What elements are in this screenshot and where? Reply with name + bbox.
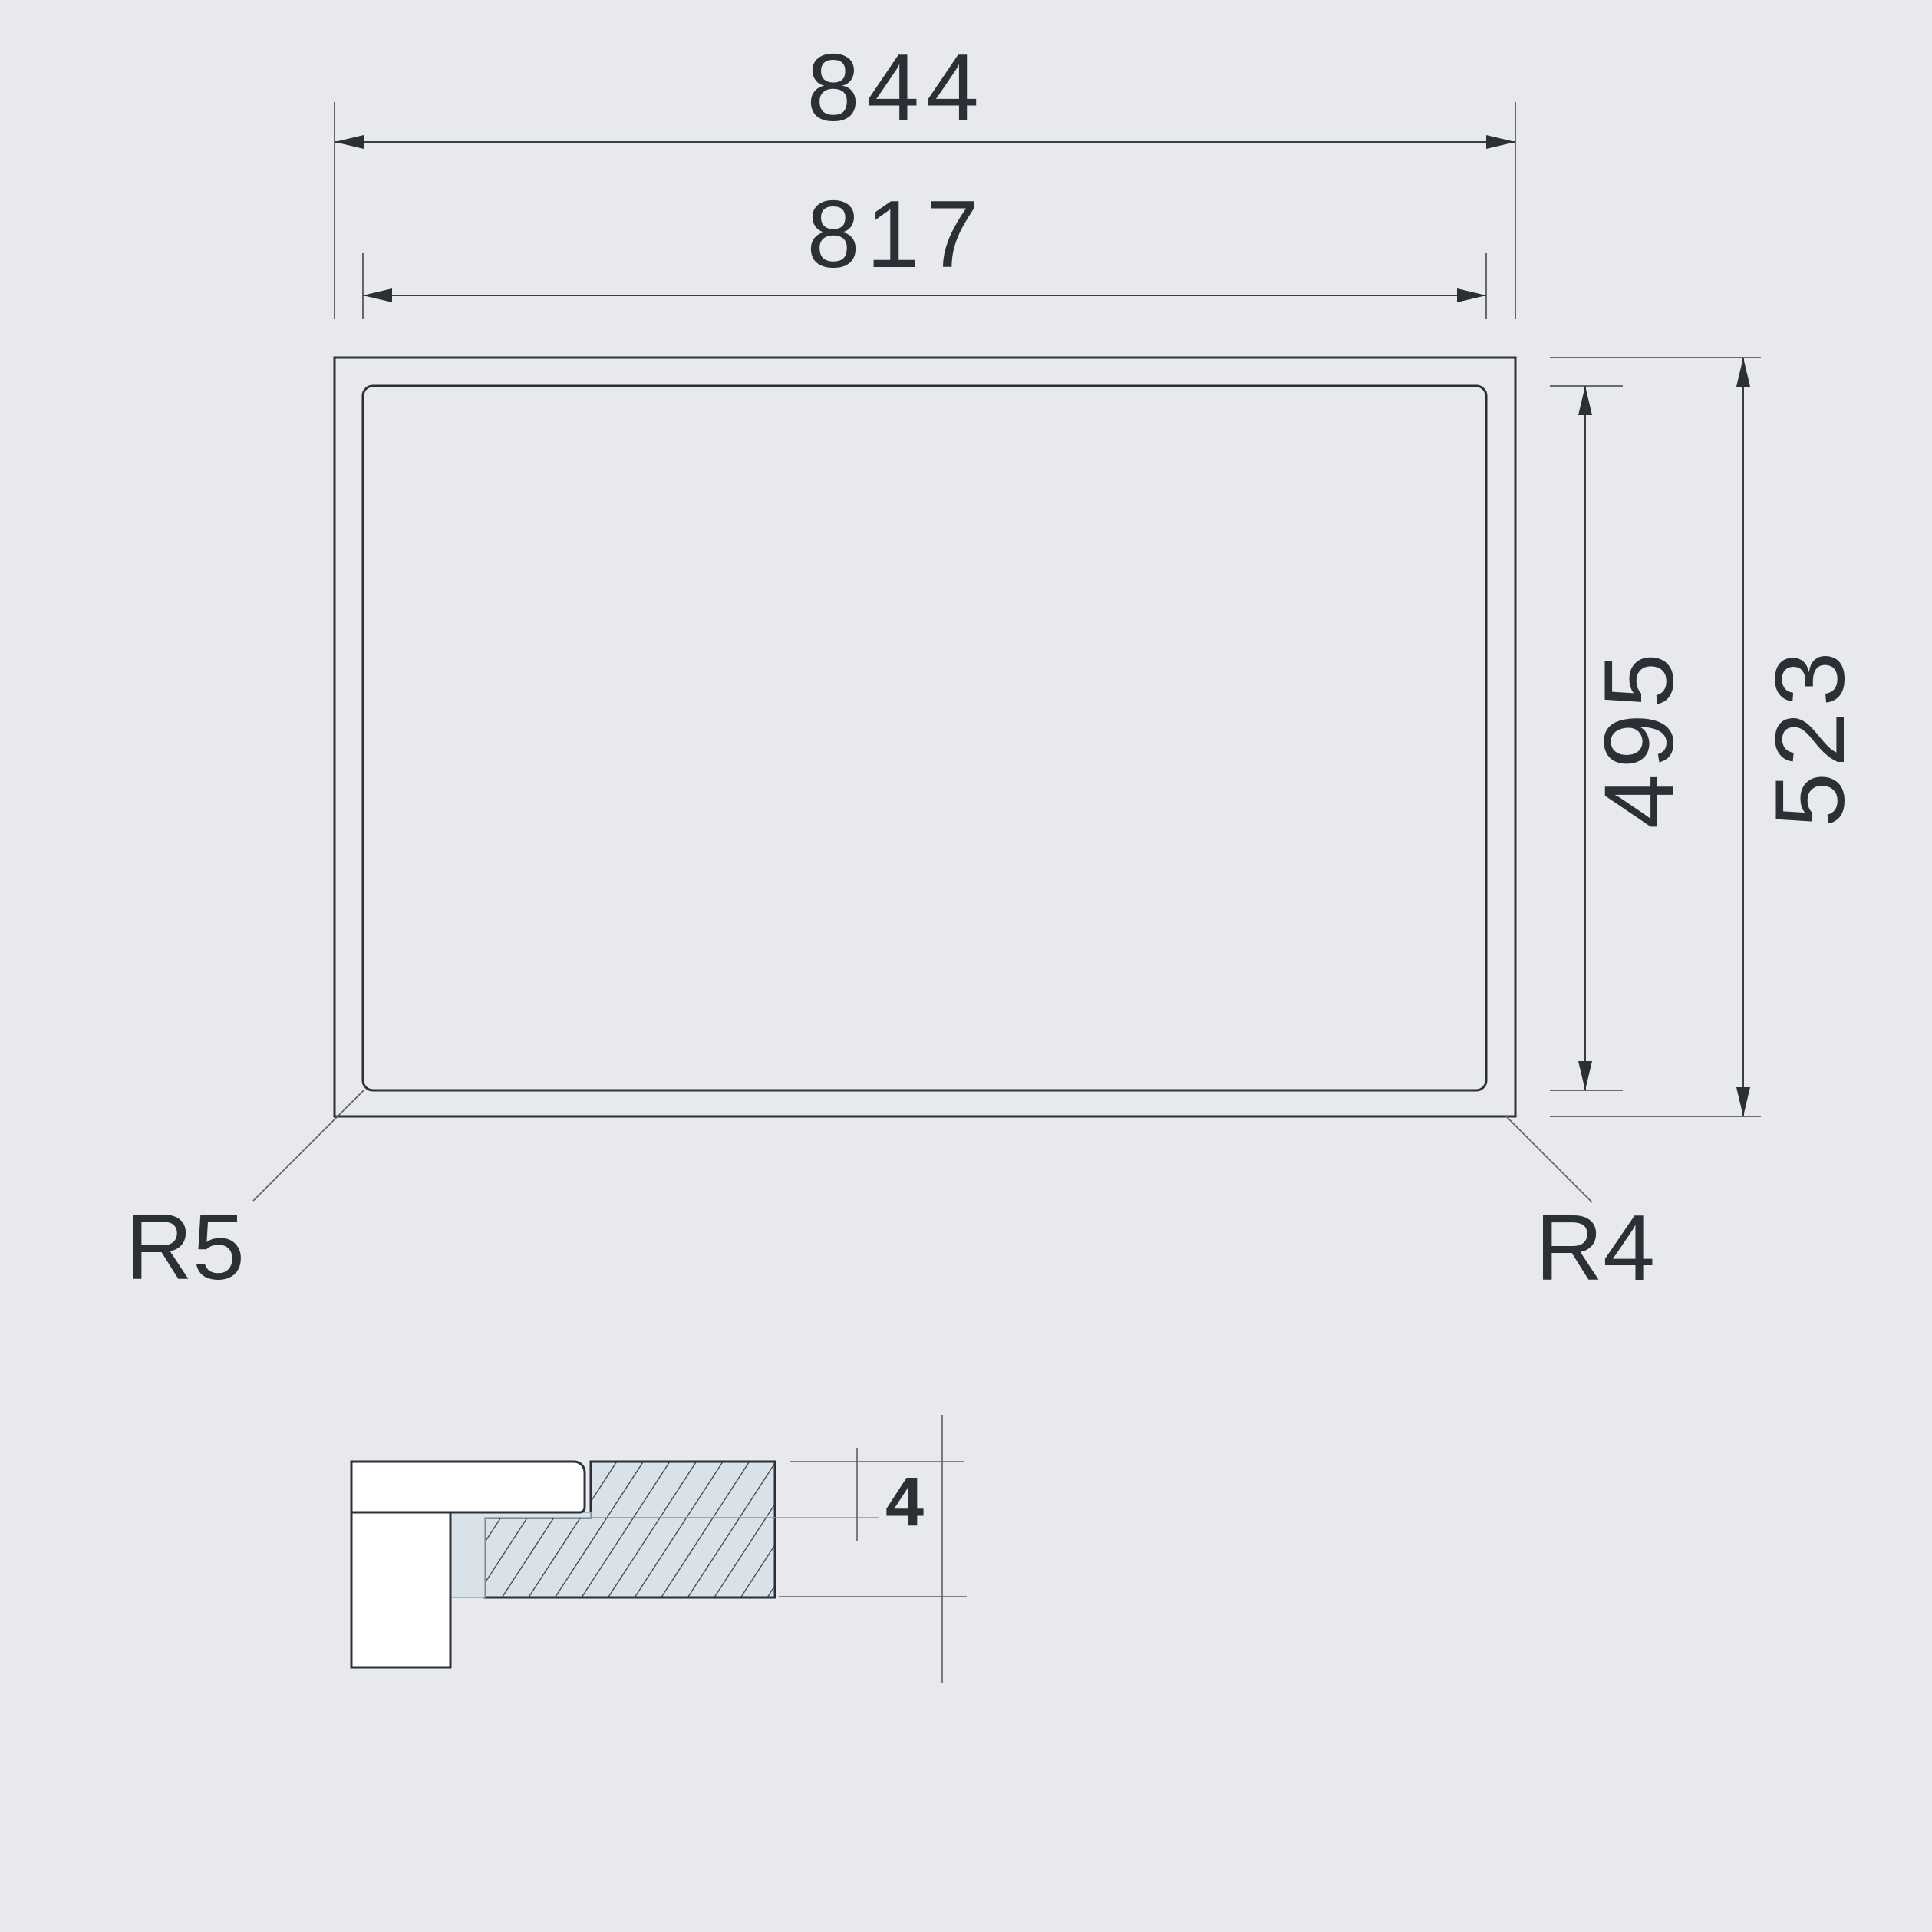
glass-panel-section: [351, 1462, 585, 1512]
drawing-canvas: 844 817 495 523: [0, 0, 1932, 1932]
arrow-up-icon: [1736, 358, 1750, 387]
plan-view: 844 817 495 523: [125, 35, 1865, 1300]
leader-line-r4: [1506, 1116, 1592, 1202]
dimension-inner-height: 495: [1550, 386, 1694, 1090]
radius-callout-bottom-left: R5: [125, 1090, 364, 1299]
dimension-label-4: 4: [885, 1464, 924, 1541]
dimension-label-817: 817: [807, 182, 986, 288]
dimension-drawing: 844 817 495 523: [0, 0, 1932, 1932]
arrow-left-icon: [363, 288, 392, 302]
dimension-label-495: 495: [1584, 648, 1694, 829]
dimension-label-523: 523: [1756, 646, 1865, 828]
arrow-left-icon: [335, 135, 364, 149]
arrow-right-icon: [1457, 288, 1486, 302]
arrow-right-icon: [1486, 135, 1515, 149]
arrow-down-icon: [1578, 1061, 1592, 1090]
dimension-inner-width: 817: [363, 182, 1486, 319]
radius-label-r5: R5: [125, 1195, 245, 1299]
appliance-body-section: [351, 1512, 450, 1667]
outer-rectangle: [335, 358, 1515, 1116]
inner-rounded-rectangle: [363, 386, 1486, 1090]
arrow-down-icon: [1736, 1087, 1750, 1116]
radius-label-r4: R4: [1535, 1195, 1655, 1300]
section-detail: 4: [351, 1415, 967, 1683]
arrow-up-icon: [1578, 386, 1592, 415]
dimension-label-844: 844: [807, 35, 986, 141]
leader-line-r5: [253, 1090, 364, 1201]
radius-callout-bottom-right: R4: [1506, 1116, 1655, 1300]
